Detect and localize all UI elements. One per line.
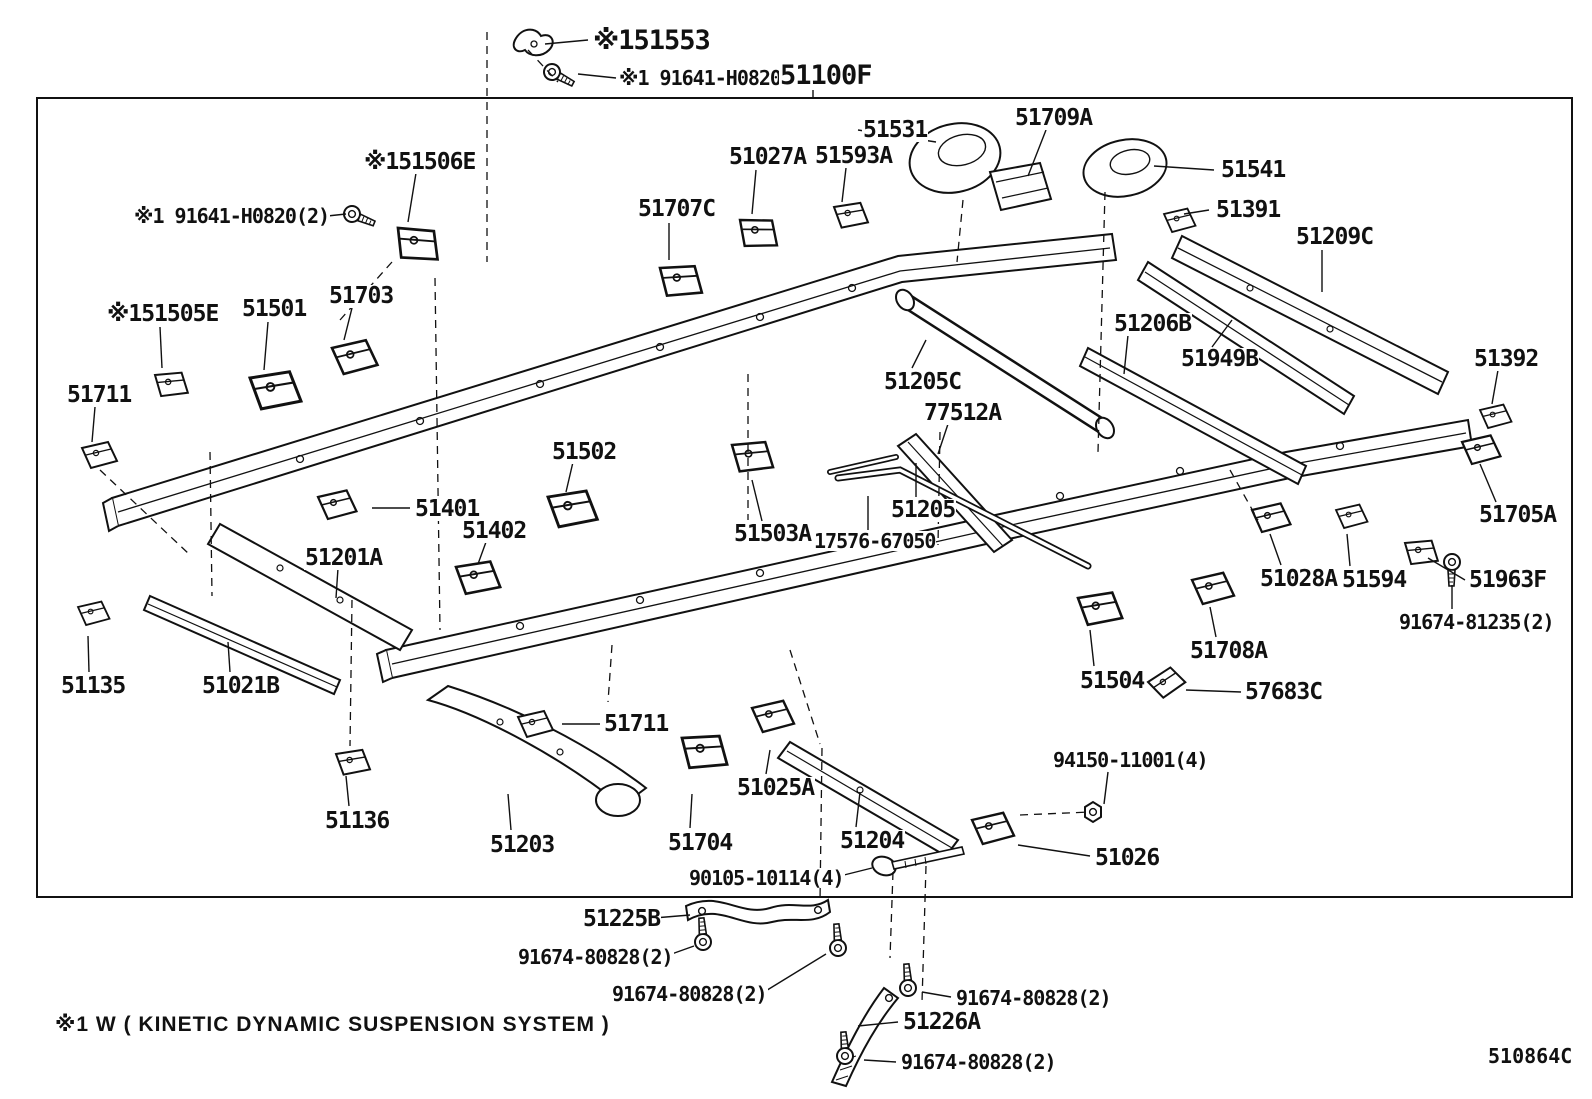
part-label: 51963F [1468, 569, 1547, 592]
crossmember-front [428, 686, 646, 816]
part-label: 51707C [637, 198, 716, 221]
part-label: 51205 [890, 499, 956, 522]
diagram-code: 510864C [1488, 1044, 1572, 1068]
part-label: 51027A [728, 146, 807, 169]
torque-box [208, 524, 412, 650]
part-label: 51226A [902, 1011, 981, 1034]
part-label: 51503A [733, 523, 812, 546]
part-label: 91674-80828(2) [955, 988, 1112, 1008]
part-label: 51201A [304, 547, 383, 570]
part-label: 91674-80828(2) [611, 984, 768, 1004]
part-label: 51026 [1094, 847, 1160, 870]
part-label: 77512A [923, 402, 1002, 425]
part-label: 17576-67050 [813, 531, 936, 551]
engine-mount-right [1078, 132, 1172, 204]
part-label: 51025A [736, 777, 815, 800]
part-label: 91674-80828(2) [900, 1052, 1057, 1072]
part-label: 51501 [241, 298, 307, 321]
parts-diagram-page: ※151553※1 91641-H082051100F5153151709A51… [0, 0, 1592, 1099]
part-label: 51703 [328, 285, 394, 308]
part-label: 51225B [582, 908, 661, 931]
part-label: 90105-10114(4) [688, 868, 845, 888]
part-label: 51135 [60, 675, 126, 698]
part-label: 94150-11001(4) [1052, 750, 1209, 770]
part-label: 51593A [814, 145, 893, 168]
part-label: 51204 [839, 830, 905, 853]
mount-bracket [990, 163, 1051, 210]
part-label: 51402 [461, 520, 527, 543]
part-label: 51205C [883, 371, 962, 394]
part-label: 51209C [1295, 226, 1374, 249]
part-label: 51391 [1215, 199, 1281, 222]
footnote: ※1 W ( KINETIC DYNAMIC SUSPENSION SYSTEM… [55, 1012, 610, 1037]
part-label: 51949B [1180, 348, 1259, 371]
part-label: ※151505E [106, 303, 219, 326]
part-label: 51704 [667, 832, 733, 855]
part-label: 51711 [603, 713, 669, 736]
part-label: 51028A [1259, 568, 1338, 591]
part-label: 51531 [862, 119, 928, 142]
part-label: ※1 91641-H0820 [618, 68, 782, 88]
part-label: 51136 [324, 810, 390, 833]
part-label: 51100F [779, 62, 873, 89]
clamp-51553 [514, 30, 553, 56]
part-label: 51711 [66, 384, 132, 407]
part-label: 51504 [1079, 670, 1145, 693]
part-label: 91674-81235(2) [1398, 612, 1555, 632]
part-label: 51502 [551, 441, 617, 464]
part-label: 51594 [1341, 569, 1407, 592]
part-label: 91674-80828(2) [517, 947, 674, 967]
part-label: 51708A [1189, 640, 1268, 663]
part-label: 51709A [1014, 107, 1093, 130]
part-label: 51021B [201, 675, 280, 698]
part-label: 51206B [1113, 313, 1192, 336]
part-label: 51203 [489, 834, 555, 857]
part-label: 57683C [1244, 681, 1323, 704]
part-label: 51392 [1473, 348, 1539, 371]
part-label: 51541 [1220, 159, 1286, 182]
part-label: ※151506E [363, 151, 476, 174]
part-label: 51705A [1478, 504, 1557, 527]
part-label: ※151553 [592, 27, 711, 54]
brace-51225B [686, 900, 830, 923]
part-label: ※1 91641-H0820(2) [133, 206, 330, 226]
